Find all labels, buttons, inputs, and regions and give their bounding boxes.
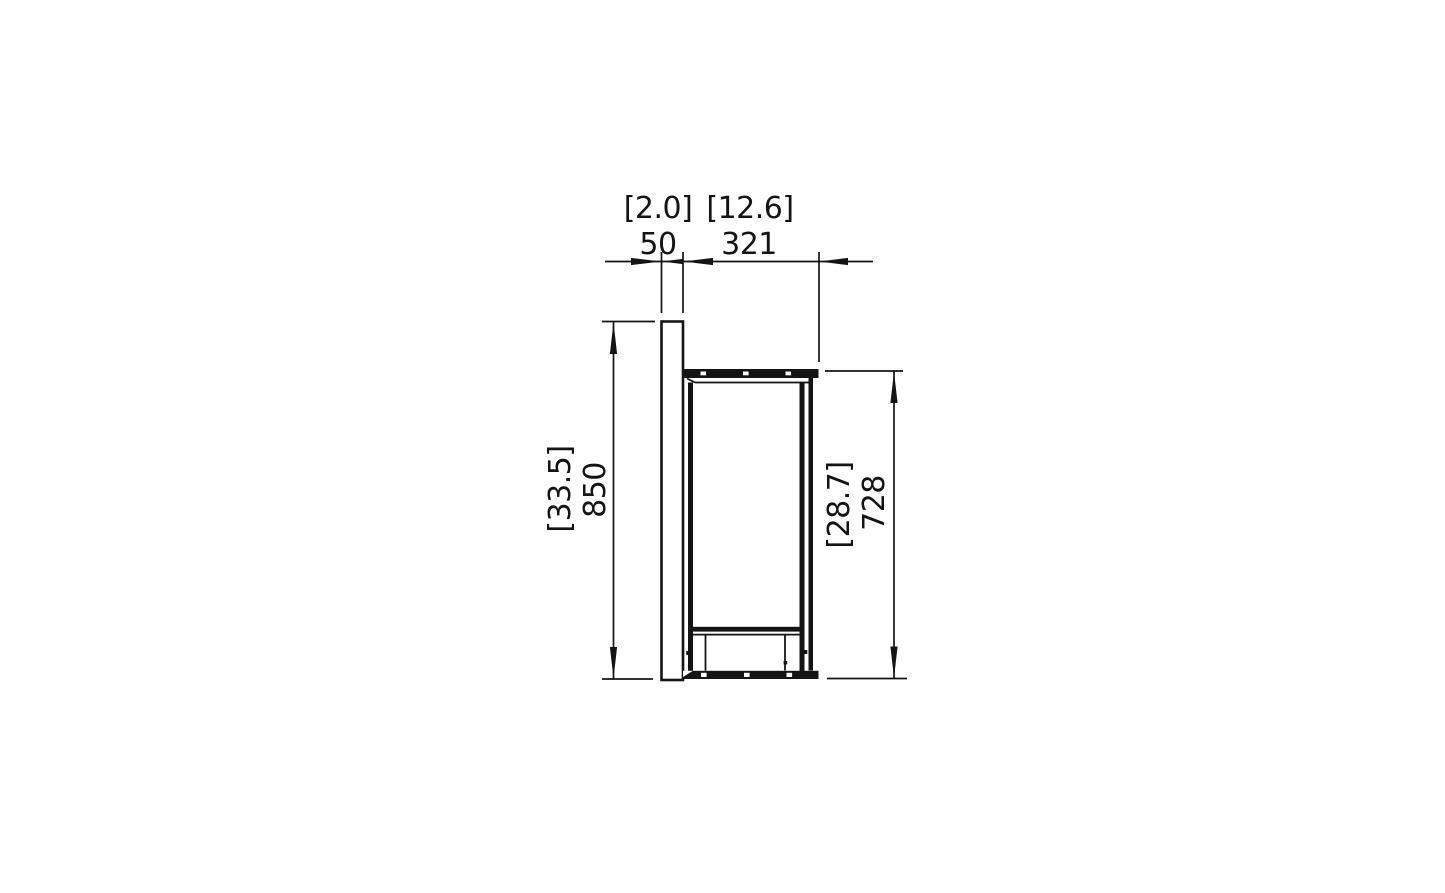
dimension-top xyxy=(605,252,873,362)
dim-panel-thickness-inches: [2.0] xyxy=(624,194,693,224)
bottom-plate xyxy=(683,671,819,679)
technical-drawing xyxy=(0,0,1445,893)
drawing-canvas: [2.0] 50 [12.6] 321 [33.5] 850 [28.7] 72… xyxy=(0,0,1445,893)
top-plate-underside xyxy=(687,379,812,383)
top-plate xyxy=(683,369,819,378)
dim-panel-thickness-mm: 50 xyxy=(639,230,676,260)
dim-depth-inches: [12.6] xyxy=(706,194,793,224)
burner-shelf xyxy=(692,627,800,671)
dim-overall-height-inches: [33.5] xyxy=(546,445,576,532)
dim-body-height-inches: [28.7] xyxy=(825,461,855,548)
dim-body-height-mm: 728 xyxy=(860,475,890,531)
wall-panel xyxy=(662,322,684,681)
dim-overall-height-mm: 850 xyxy=(581,462,611,518)
dim-depth-mm: 321 xyxy=(721,230,777,260)
